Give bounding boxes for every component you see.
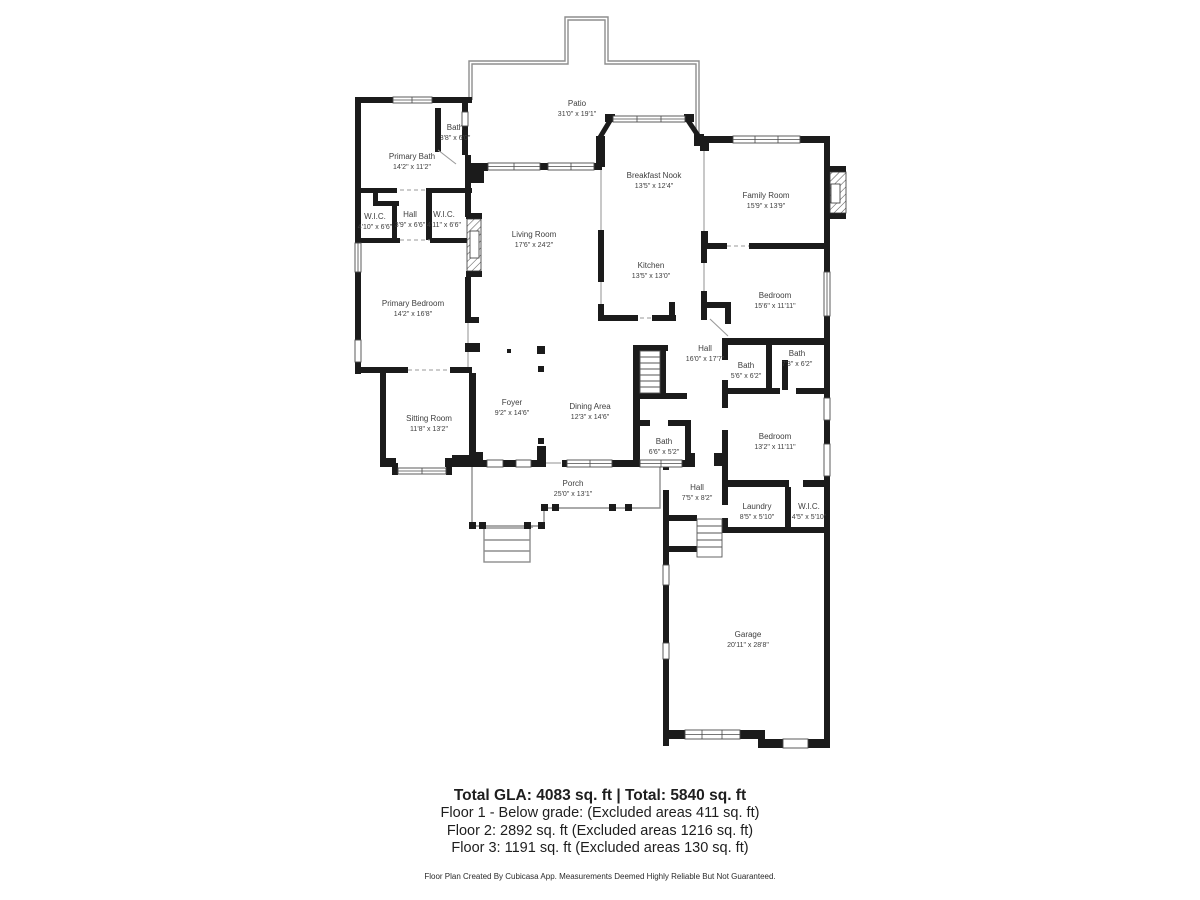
room-label-primary-bedroom: Primary Bedroom14'2" x 16'8" — [382, 298, 444, 321]
floor-3-line: Floor 3: 1191 sq. ft (Excluded areas 130… — [0, 840, 1200, 858]
room-label-wic-left: W.I.C.4'10" x 6'6" — [358, 211, 393, 234]
room-label-hall-lower: Hall7'5" x 8'2" — [682, 482, 713, 505]
room-label-bedroom-2: Bedroom15'6" x 11'11" — [754, 290, 795, 313]
living-fireplace — [467, 219, 481, 271]
floorplan-page: Bath3'8" x 6'0" Primary Bath14'2" x 11'2… — [0, 0, 1200, 900]
room-label-kitchen: Kitchen13'5" x 13'0" — [632, 260, 670, 283]
room-label-wic-2: W.I.C.4'5" x 5'10" — [792, 501, 827, 524]
floorplan-drawing — [0, 0, 1200, 900]
room-label-dining-area: Dining Area12'3" x 14'6" — [569, 401, 610, 424]
room-label-bath-73: Bath7'3" x 6'2" — [782, 348, 813, 371]
room-label-primary-bath: Primary Bath14'2" x 11'2" — [389, 151, 435, 174]
room-label-bath-upper: Bath3'8" x 6'0" — [440, 122, 471, 145]
room-label-bath-56: Bath5'6" x 6'2" — [731, 360, 762, 383]
room-label-sitting-room: Sitting Room11'8" x 13'2" — [406, 413, 452, 436]
room-label-living-room: Living Room17'6" x 24'2" — [512, 229, 556, 252]
room-label-bedroom-3: Bedroom13'2" x 11'11" — [754, 431, 795, 454]
room-label-foyer: Foyer9'2" x 14'6" — [495, 397, 530, 420]
room-label-patio: Patio31'0" x 19'1" — [558, 98, 596, 121]
floor-2-line: Floor 2: 2892 sq. ft (Excluded areas 121… — [0, 823, 1200, 841]
room-label-hall-small: Hall3'9" x 6'6" — [395, 209, 426, 232]
room-label-hall-center: Hall16'0" x 17'7" — [686, 343, 724, 366]
total-gla-line: Total GLA: 4083 sq. ft | Total: 5840 sq.… — [0, 787, 1200, 805]
room-label-laundry: Laundry8'5" x 5'10" — [740, 501, 775, 524]
room-label-porch: Porch25'0" x 13'1" — [554, 478, 592, 501]
disclaimer-text: Floor Plan Created By Cubicasa App. Meas… — [0, 872, 1200, 881]
family-fireplace — [830, 172, 846, 213]
room-label-breakfast-nook: Breakfast Nook13'5" x 12'4" — [627, 170, 682, 193]
floor-1-line: Floor 1 - Below grade: (Excluded areas 4… — [0, 805, 1200, 823]
stairs-garage — [697, 519, 722, 557]
room-label-garage: Garage20'11" x 28'8" — [727, 629, 769, 652]
room-label-bath-66: Bath6'6" x 5'2" — [649, 436, 680, 459]
summary-footer: Total GLA: 4083 sq. ft | Total: 5840 sq.… — [0, 787, 1200, 881]
room-label-wic-right: W.I.C.4'11" x 6'6" — [427, 209, 461, 232]
room-label-family-room: Family Room15'9" x 13'9" — [742, 190, 789, 213]
stairs-main — [640, 351, 660, 393]
